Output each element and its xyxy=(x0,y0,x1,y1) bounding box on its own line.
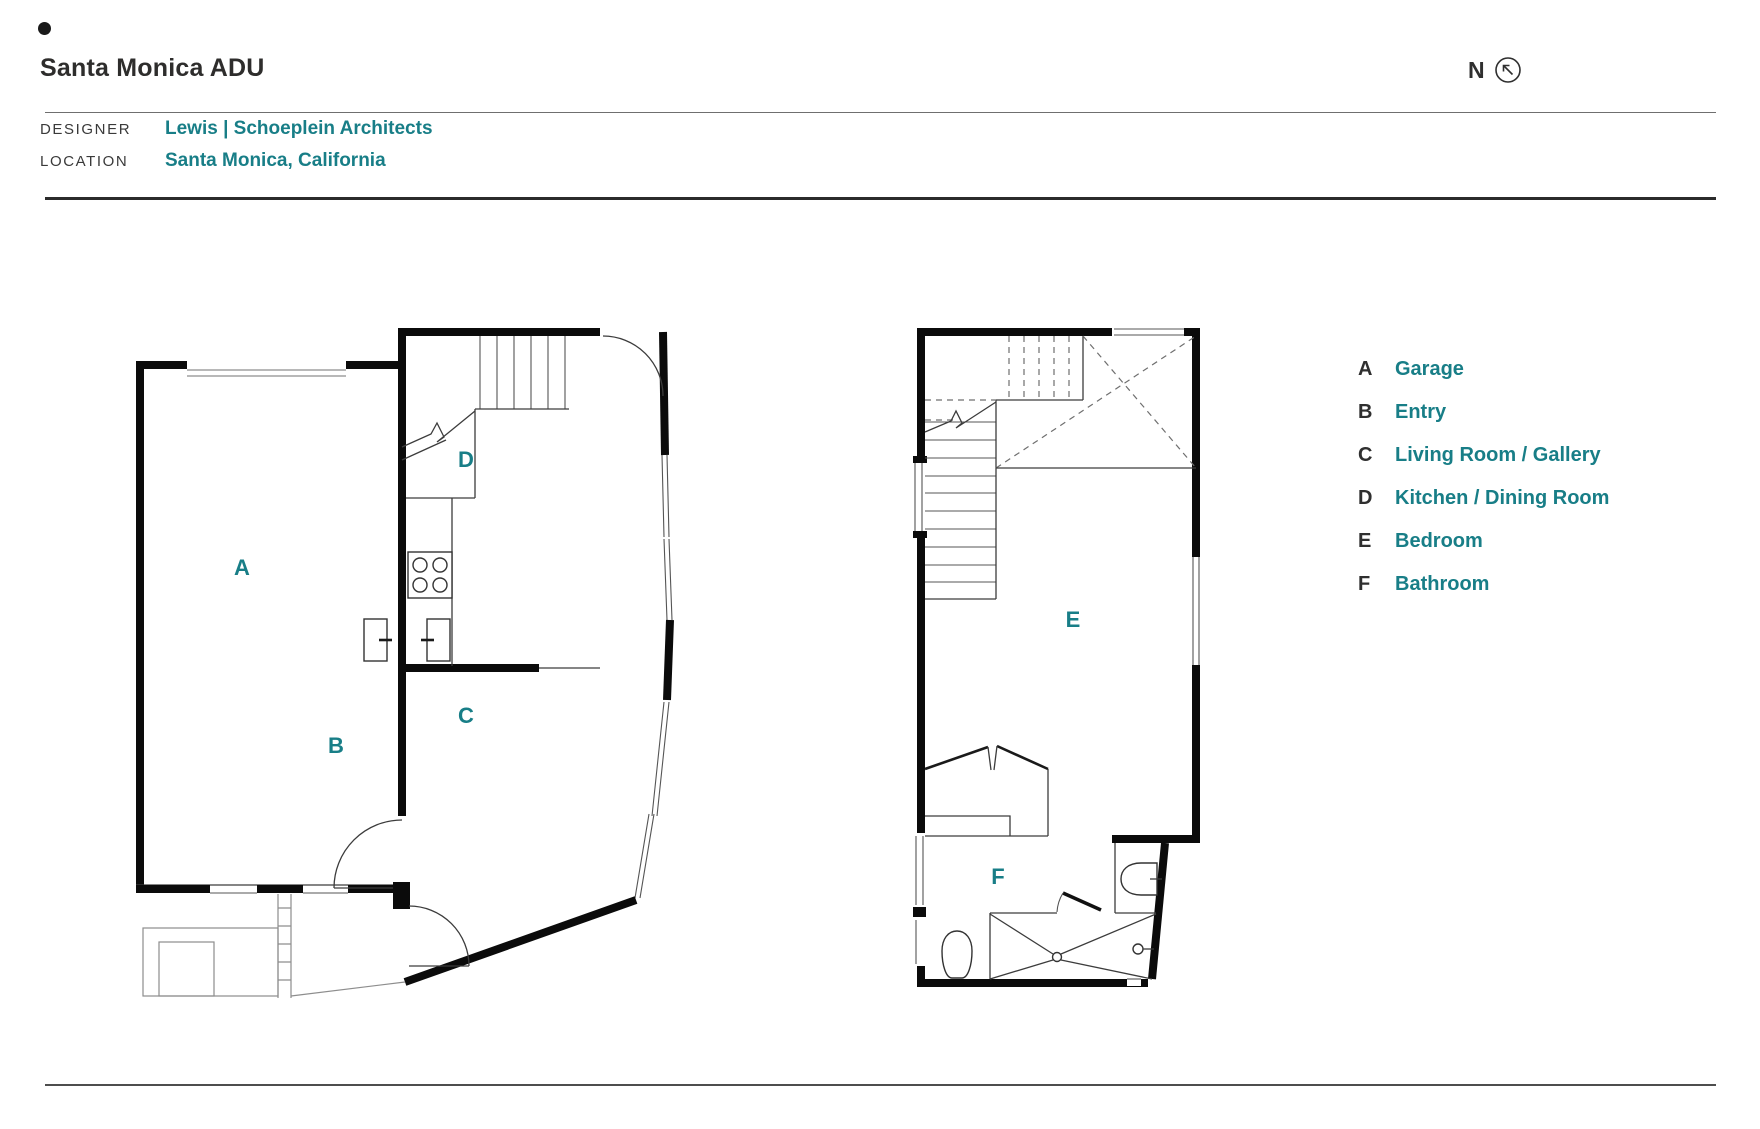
entry-door-top xyxy=(603,336,663,396)
room-label-bathroom: F xyxy=(991,864,1004,890)
legend-name: Kitchen / Dining Room xyxy=(1395,487,1609,510)
open-to-below xyxy=(996,336,1196,468)
header-divider xyxy=(45,112,1716,113)
room-label-bedroom: E xyxy=(1066,607,1081,633)
header-thick-divider xyxy=(45,197,1716,200)
appliance-icons xyxy=(364,619,450,661)
room-label-garage: A xyxy=(234,555,250,581)
legend-key: A xyxy=(1358,358,1384,381)
legend-name: Entry xyxy=(1395,401,1446,424)
legend-row-entry: B Entry xyxy=(1358,391,1609,434)
stairs-first-floor xyxy=(402,336,569,498)
north-indicator: N xyxy=(1468,56,1522,84)
room-label-living: C xyxy=(458,703,474,729)
designer-value: Lewis | Schoeplein Architects xyxy=(165,118,433,140)
legend-key: D xyxy=(1358,487,1384,510)
legend-row-bedroom: E Bedroom xyxy=(1358,520,1609,563)
legend-key: E xyxy=(1358,530,1384,553)
legend-name: Garage xyxy=(1395,358,1464,381)
room-label-entry: B xyxy=(328,733,344,759)
bathroom-fixtures xyxy=(942,843,1162,979)
location-label: LOCATION xyxy=(40,153,128,170)
first-floor-plan: A B C D xyxy=(128,288,688,1003)
legend-name: Living Room / Gallery xyxy=(1395,444,1601,467)
legend-key: C xyxy=(1358,444,1384,467)
entry-b-door xyxy=(334,820,410,909)
north-arrow-icon xyxy=(1494,56,1522,84)
legend-name: Bedroom xyxy=(1395,530,1483,553)
second-floor-plan: E F xyxy=(905,280,1205,995)
room-legend: A Garage B Entry C Living Room / Gallery… xyxy=(1358,348,1609,606)
location-value: Santa Monica, California xyxy=(165,150,386,172)
second-floor-plan-drawing xyxy=(905,280,1205,995)
garage-door xyxy=(187,370,346,376)
room-label-kitchen: D xyxy=(458,447,474,473)
porch-steps xyxy=(143,894,405,998)
bathroom-walls xyxy=(1112,839,1200,979)
legend-row-living-room: C Living Room / Gallery xyxy=(1358,434,1609,477)
designer-label: DESIGNER xyxy=(40,121,131,138)
legend-row-garage: A Garage xyxy=(1358,348,1609,391)
front-entry-door xyxy=(409,906,469,966)
legend-row-kitchen: D Kitchen / Dining Room xyxy=(1358,477,1609,520)
bullet-dot xyxy=(38,22,51,35)
toilet-icon xyxy=(942,931,972,978)
closet xyxy=(925,746,1048,836)
legend-row-bathroom: F Bathroom xyxy=(1358,563,1609,606)
footer-divider xyxy=(45,1084,1716,1086)
legend-key: F xyxy=(1358,573,1384,596)
page-title: Santa Monica ADU xyxy=(40,54,265,83)
north-label: N xyxy=(1468,57,1485,84)
stove-icon xyxy=(408,552,452,598)
first-floor-plan-drawing xyxy=(128,288,688,1003)
legend-key: B xyxy=(1358,401,1384,424)
floor-plan-sheet: Santa Monica ADU N DESIGNER Lewis | Scho… xyxy=(0,0,1760,1129)
legend-name: Bathroom xyxy=(1395,573,1489,596)
